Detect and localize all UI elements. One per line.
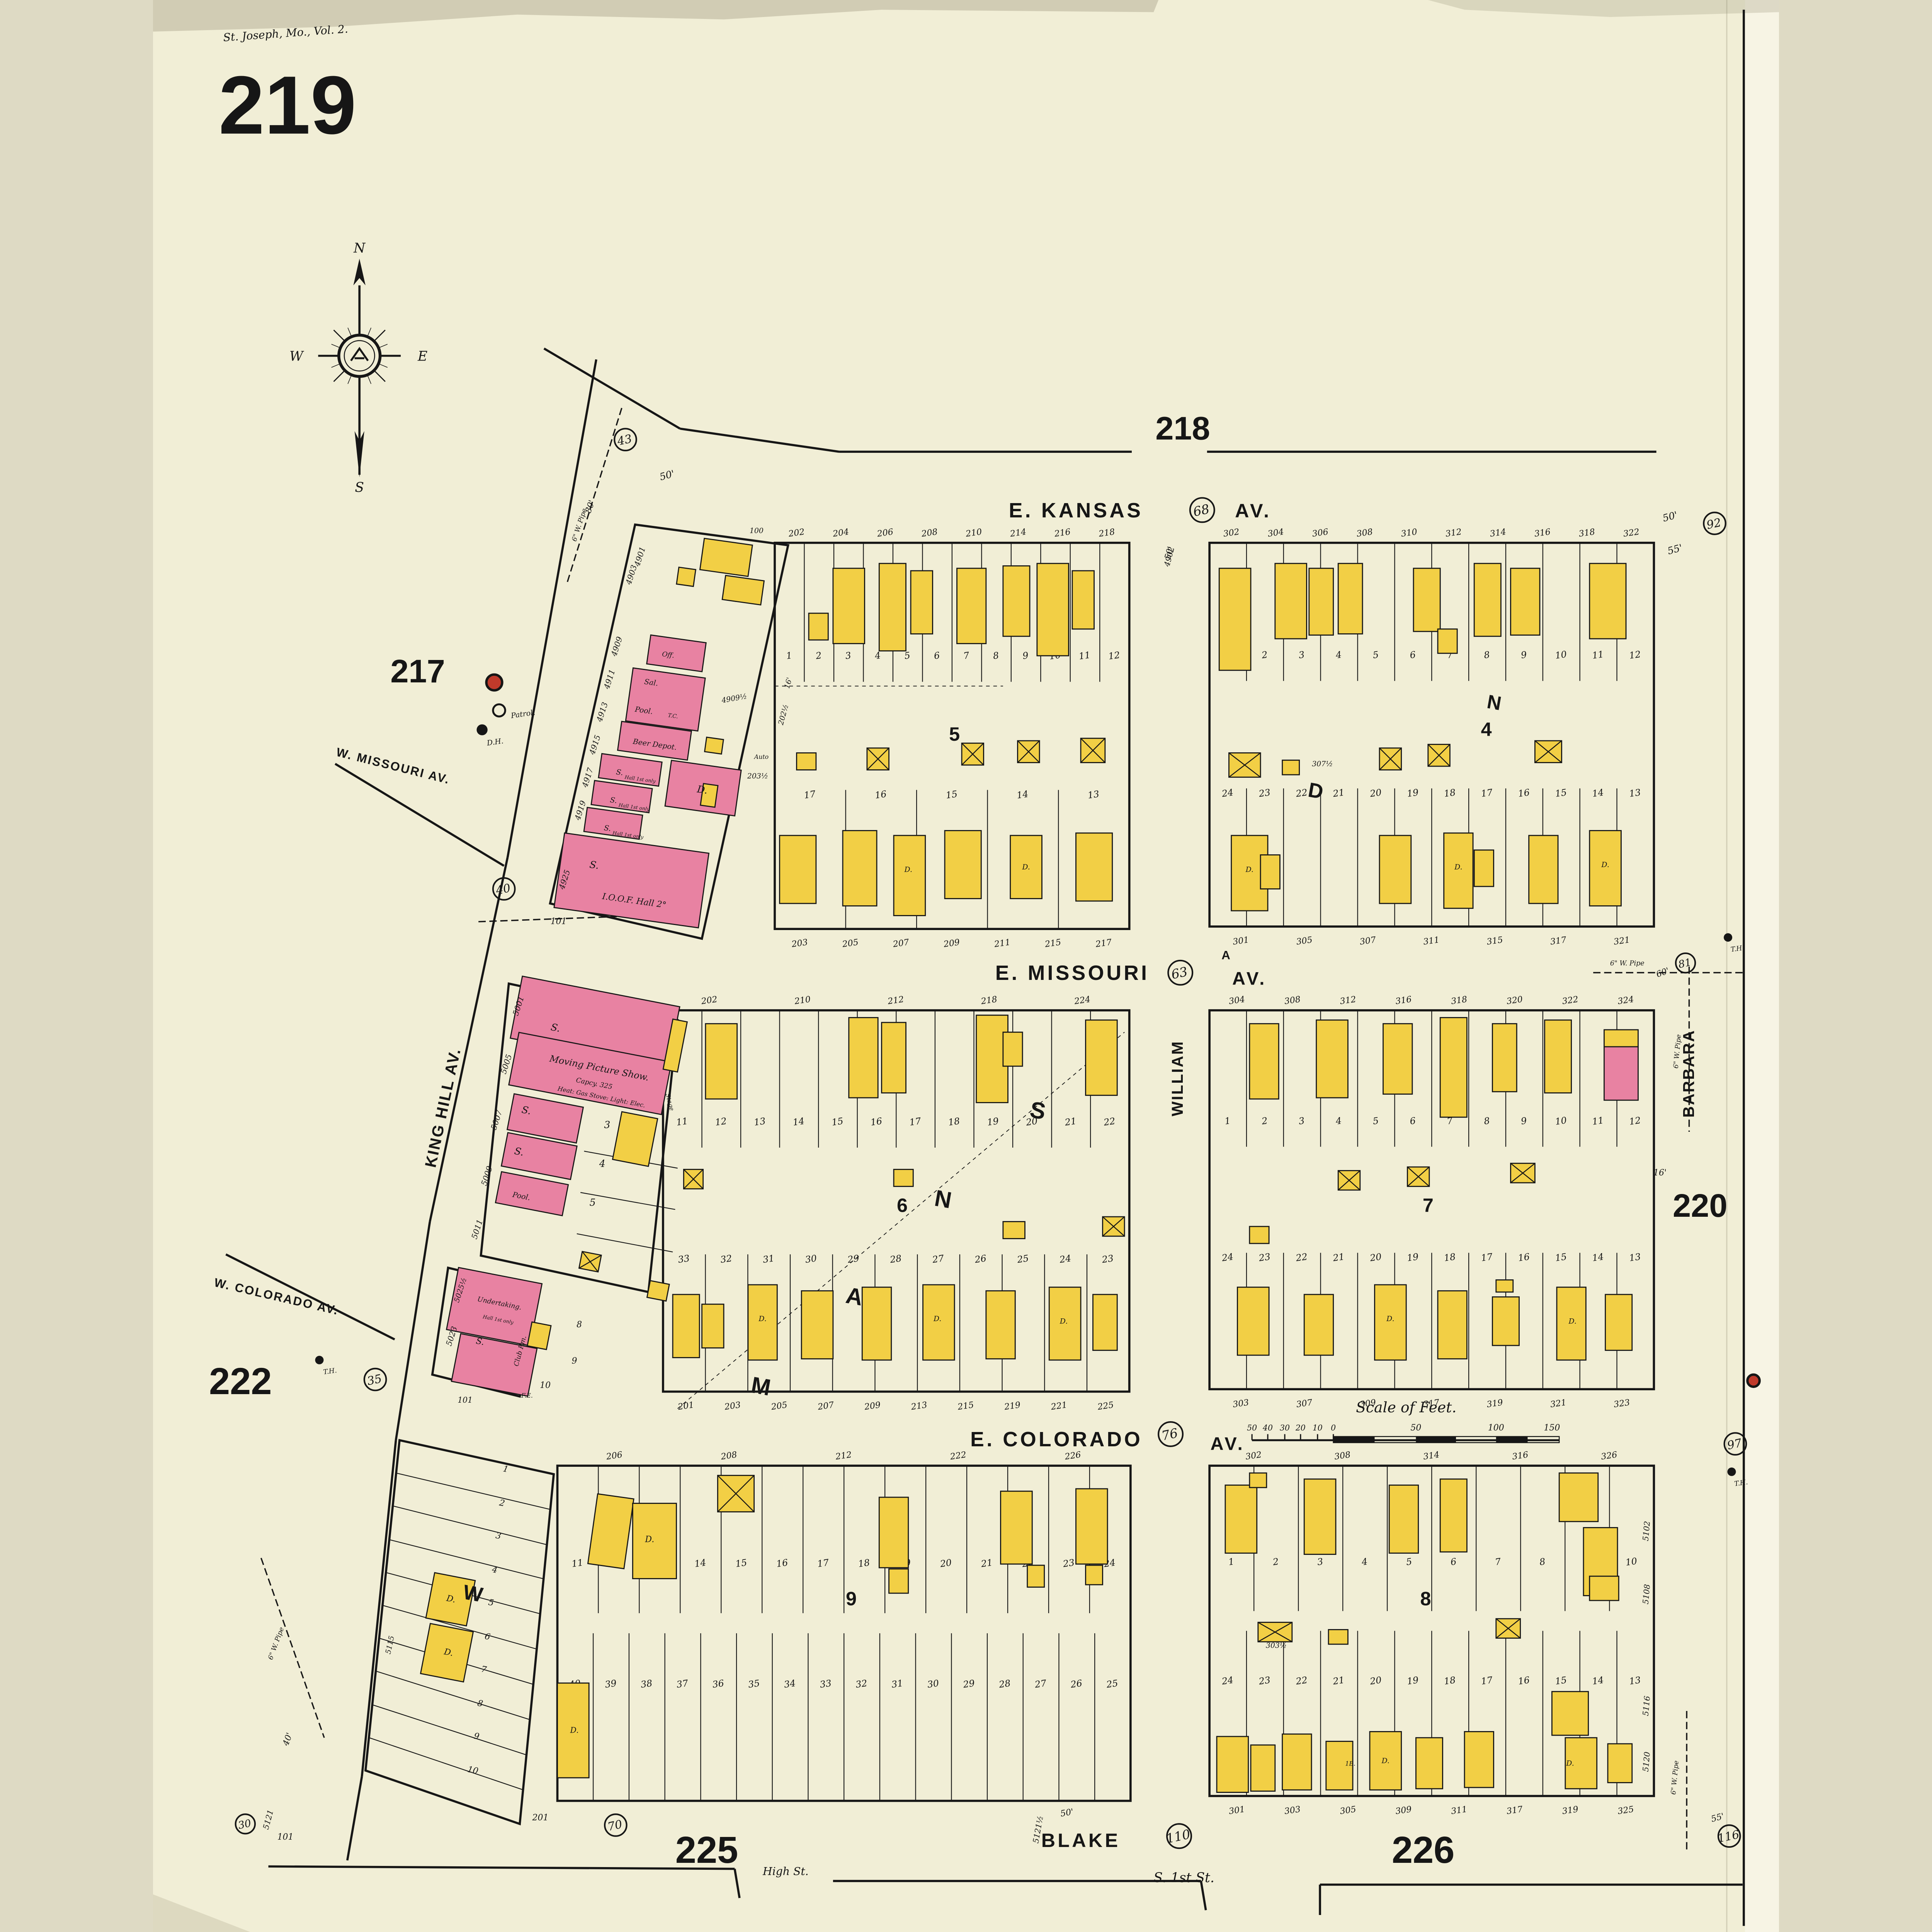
lot-number: 16: [874, 788, 887, 801]
building-footprint: [1304, 1479, 1336, 1554]
building-footprint: [797, 753, 816, 770]
building-footprint: [1544, 1020, 1571, 1093]
building-footprint: [1217, 1736, 1248, 1793]
building-frame: [1510, 568, 1539, 635]
map-label: 225: [675, 1829, 738, 1871]
building-frame: [843, 831, 877, 906]
building-footprint: [809, 613, 828, 640]
building-frame: [706, 1024, 737, 1099]
building-frame: [1389, 1485, 1418, 1553]
lot-number: 25: [1016, 1253, 1030, 1265]
map-stage: 6" W. Pipe.6" W. Pipe6" W. Pipe6" W. Pip…: [0, 0, 1932, 1932]
building-footprint: [1001, 1491, 1032, 1564]
lot-number: 23: [1101, 1253, 1114, 1265]
map-label: 222: [209, 1360, 272, 1402]
building-footprint: [879, 563, 906, 651]
scale-main-label: 150: [1544, 1423, 1560, 1433]
building-footprint: [843, 831, 877, 906]
building-outbuilding: [1535, 741, 1561, 763]
building-outbuilding: [1018, 741, 1040, 763]
map-label: S.: [604, 824, 612, 833]
building-footprint: [1608, 1744, 1632, 1783]
lot-number: 33: [819, 1678, 832, 1690]
compass-e: E: [417, 349, 427, 364]
lot-number: 22: [1295, 1251, 1308, 1264]
lot-number: 20: [1369, 1675, 1383, 1687]
building-footprint: [1559, 1473, 1598, 1522]
building-frame: [1608, 1744, 1632, 1783]
map-label: AV.: [1232, 968, 1267, 989]
building-footprint: [527, 1322, 551, 1349]
lot-number: 11: [1592, 1115, 1605, 1127]
lot-number: 16: [1517, 787, 1531, 799]
building-frame: [1316, 1020, 1348, 1098]
building-frame: [1304, 1479, 1336, 1554]
map-label: 219: [219, 60, 357, 151]
building-frame: [1474, 563, 1501, 636]
building-frame: [1383, 1024, 1412, 1094]
building-outbuilding: [1229, 753, 1260, 777]
building-footprint: [1282, 760, 1299, 775]
map-label: E. KANSAS: [1009, 499, 1143, 522]
building-footprint: [702, 1304, 724, 1348]
building-frame: [1590, 563, 1626, 639]
block-number: 9: [846, 1588, 857, 1610]
building-footprint: [1250, 1226, 1269, 1243]
building-outbuilding: [867, 748, 889, 770]
map-label: D.: [1022, 863, 1030, 871]
lot-number: 12: [714, 1116, 728, 1128]
building-footprint: [894, 835, 925, 915]
building-frame: [1282, 1734, 1311, 1790]
lot-number: 17: [816, 1557, 830, 1570]
map-label: E. MISSOURI: [995, 962, 1150, 985]
building-frame: [1251, 1745, 1275, 1791]
map-label: S.: [609, 796, 617, 805]
building-footprint: [633, 1503, 676, 1579]
lot-number: 14: [1016, 788, 1029, 801]
map-label: D.: [696, 783, 708, 796]
map-label: T.C.: [667, 713, 679, 720]
building-footprint: [722, 575, 764, 605]
building-footprint: [889, 1569, 908, 1593]
building-frame: [1440, 1018, 1467, 1117]
map-label: 3: [604, 1119, 610, 1131]
building-frame: [1496, 1280, 1513, 1292]
compass-ring: [339, 335, 380, 376]
lot-number: 23: [1258, 1675, 1271, 1687]
map-label: 307½: [1312, 760, 1333, 768]
lot-number: 13: [1628, 787, 1641, 799]
map-label: 9: [571, 1356, 577, 1366]
scale-tick-label: 0: [1331, 1423, 1336, 1432]
map-label: 5120: [1641, 1751, 1652, 1772]
lot-number: 30: [804, 1253, 818, 1265]
lot-number: 10: [1554, 649, 1568, 661]
map-label: 16': [1653, 1168, 1667, 1178]
building-outbuilding: [1407, 1167, 1429, 1186]
lot-number: 23: [1062, 1557, 1075, 1570]
building-footprint: [626, 668, 705, 731]
building-frame: [702, 1304, 724, 1348]
building-footprint: [1510, 568, 1539, 635]
lot-number: 27: [931, 1253, 945, 1265]
map-label: S. 1st St.: [1153, 1870, 1214, 1886]
building-frame: [1086, 1565, 1103, 1585]
building-frame: [801, 1291, 833, 1359]
map-label: S.: [616, 768, 624, 777]
map-label: D.: [1245, 866, 1253, 874]
building-footprint: [1438, 1291, 1467, 1359]
building-footprint: [1309, 568, 1333, 635]
map-label: 1B.: [1345, 1760, 1355, 1767]
scale-bar-title: Scale of Feet.: [1356, 1399, 1456, 1416]
building-frame: [527, 1322, 551, 1349]
building-footprint: [1605, 1294, 1632, 1350]
building-frame: [1076, 833, 1112, 901]
building-frame: [1416, 1738, 1442, 1789]
building-footprint: [1590, 1576, 1619, 1600]
fire-alarm-disc: [1747, 1375, 1759, 1387]
block-number: 5: [949, 723, 960, 745]
map-label: 203½: [747, 772, 768, 780]
building-frame: [633, 1503, 676, 1579]
building-frame: [1464, 1731, 1493, 1787]
building-outbuilding: [1258, 1622, 1292, 1642]
building-footprint: [1590, 563, 1626, 639]
map-label: 101: [277, 1832, 294, 1842]
lot-number: 39: [604, 1678, 617, 1690]
building-frame: [677, 567, 696, 587]
building-frame: [1492, 1297, 1519, 1345]
map-label: 101: [457, 1395, 473, 1405]
lot-number: 16: [776, 1557, 789, 1570]
building-frame: [986, 1291, 1015, 1359]
lot-number: 21: [980, 1557, 993, 1570]
lot-number: 11: [1592, 649, 1605, 661]
building-frame: [673, 1294, 699, 1357]
building-frame: [1003, 1222, 1025, 1239]
map-label: 218: [1155, 410, 1210, 447]
lot-number: 17: [1480, 787, 1493, 799]
building-frame: [1260, 855, 1280, 889]
building-outbuilding: [1428, 744, 1450, 766]
fire-alarm-icon: [486, 675, 502, 690]
lot-number: 24: [1221, 1675, 1234, 1687]
building-frame: [1037, 563, 1069, 656]
building-frame: [1379, 835, 1411, 903]
building-frame: [1492, 1024, 1517, 1092]
building-frame: [1250, 1024, 1279, 1099]
lot-number: 22: [1103, 1116, 1116, 1128]
lot-number: 28: [889, 1253, 902, 1265]
building-frame: [1304, 1294, 1333, 1355]
map-label: 5108: [1641, 1584, 1652, 1605]
map-label: D.: [933, 1315, 941, 1323]
compass-s: S: [355, 480, 364, 495]
building-brick: [626, 668, 705, 731]
building-footprint: [1093, 1294, 1117, 1350]
building-frame: [1438, 629, 1457, 653]
map-label: A: [1221, 949, 1231, 962]
building-footprint: [677, 567, 696, 587]
lot-number: 19: [1406, 1675, 1419, 1687]
building-footprint: [1383, 1024, 1412, 1094]
building-frame: [862, 1287, 891, 1360]
map-label: 217: [390, 653, 445, 689]
building-frame: [1275, 563, 1307, 639]
building-footprint: [1003, 566, 1030, 636]
building-footprint: [1328, 1629, 1348, 1644]
map-label: D.: [445, 1594, 456, 1605]
building-footprint: [1086, 1565, 1103, 1585]
building-frame: [704, 737, 723, 754]
lot-number: 18: [1443, 787, 1456, 799]
lot-number: 12: [1108, 650, 1121, 662]
building-footprint: [1237, 1287, 1269, 1355]
lot-number: 15: [735, 1557, 748, 1570]
map-label: Auto: [753, 753, 769, 760]
building-footprint: [1250, 1024, 1279, 1099]
building-outbuilding: [1081, 738, 1105, 763]
lot-number: 18: [1443, 1251, 1456, 1264]
building-frame: [1250, 1473, 1267, 1488]
building-frame: [1559, 1473, 1598, 1522]
building-frame: [1093, 1294, 1117, 1350]
map-label: S.: [589, 859, 600, 871]
building-frame: [1086, 1020, 1117, 1095]
map-label: F.E.: [521, 1392, 533, 1399]
compass-w: W: [289, 349, 304, 364]
triple-hydrant-icon: [315, 1356, 324, 1364]
lot-number: 16: [1517, 1675, 1531, 1687]
building-frame: [1552, 1692, 1588, 1735]
map-label: D.: [1386, 1315, 1394, 1323]
building-outbuilding: [1510, 1163, 1535, 1183]
building-frame: [797, 753, 816, 770]
building-footprint: [704, 737, 723, 754]
building-frame: [889, 1569, 908, 1593]
map-label: BLAKE: [1041, 1829, 1121, 1851]
building-footprint: [879, 1497, 908, 1568]
building-frame: [1309, 568, 1333, 635]
building-footprint: [1440, 1479, 1467, 1552]
scale-tick-label: 30: [1280, 1423, 1290, 1432]
map-label: D.: [904, 866, 912, 874]
lot-number: 25: [1105, 1678, 1119, 1690]
map-label: 10: [540, 1381, 551, 1390]
lot-number: 37: [676, 1678, 689, 1690]
building-footprint: [1416, 1738, 1442, 1789]
map-label: High St.: [762, 1865, 809, 1878]
map-label: 10: [467, 1765, 479, 1776]
building-frame: [1225, 1485, 1257, 1553]
map-label: E. COLORADO: [970, 1428, 1143, 1451]
lot-number: 11: [571, 1557, 584, 1570]
map-label: BARBARA: [1680, 1029, 1697, 1117]
map-label: 100: [750, 527, 764, 535]
lot-number: 14: [1592, 1251, 1605, 1264]
lot-number: 30: [927, 1678, 940, 1690]
map-label: 5116: [1641, 1696, 1652, 1716]
lot-number: 12: [1628, 649, 1641, 661]
building-frame: [882, 1022, 906, 1093]
lot-number: 15: [1554, 1675, 1568, 1687]
lot-number: 15: [831, 1116, 844, 1128]
building-outbuilding: [1496, 1619, 1520, 1638]
building-outbuilding: [962, 743, 984, 765]
building-frame: [1438, 1291, 1467, 1359]
map-label: WILLIAM: [1168, 1040, 1186, 1116]
building-frame: [879, 1497, 908, 1568]
lot-number: 14: [792, 1116, 805, 1128]
building-footprint: [1275, 563, 1307, 639]
map-label: D.: [645, 1535, 654, 1544]
lot-number: 13: [1628, 1251, 1641, 1264]
building-frame: [1338, 563, 1362, 634]
block-number: 8: [1420, 1588, 1431, 1610]
map-label: D.: [1060, 1318, 1068, 1326]
building-frame: [1001, 1491, 1032, 1564]
lot-number: 20: [1369, 787, 1383, 799]
building-frame: [1605, 1294, 1632, 1350]
lot-number: 17: [909, 1116, 922, 1128]
building-outbuilding: [1103, 1217, 1125, 1236]
lot-number: 27: [1034, 1678, 1047, 1690]
building-footprint: [945, 831, 981, 899]
lot-number: 14: [1592, 787, 1605, 799]
building-footprint: [1552, 1692, 1588, 1735]
map-label: 5102: [1641, 1520, 1652, 1541]
building-footprint: [1316, 1020, 1348, 1098]
paper-background: [153, 0, 1779, 1932]
building-footprint: [1003, 1032, 1022, 1066]
building-footprint: [986, 1291, 1015, 1359]
lot-number: 19: [1406, 1251, 1419, 1264]
building-frame: [1282, 760, 1299, 775]
building-footprint: [1529, 835, 1558, 903]
building-frame: [780, 835, 816, 903]
lot-number: 15: [945, 788, 958, 801]
building-footprint: [1037, 563, 1069, 656]
lot-number: 15: [1554, 1251, 1568, 1264]
building-frame: [1027, 1565, 1044, 1587]
building-footprint: [1389, 1485, 1418, 1553]
paper-margin-right: [1745, 0, 1779, 1932]
building-outbuilding: [579, 1252, 601, 1272]
building-footprint: [700, 538, 752, 576]
building-frame: [879, 563, 906, 651]
building-frame: [1590, 1576, 1619, 1600]
building-frame: [1474, 850, 1493, 886]
building-frame: [1003, 566, 1030, 636]
building-frame: [1072, 571, 1094, 629]
map-label: D.: [1568, 1318, 1577, 1326]
lot-number: 19: [1406, 787, 1419, 799]
lot-number: 14: [694, 1557, 707, 1570]
scale-tick-label: 10: [1313, 1423, 1323, 1432]
lot-number: 18: [857, 1557, 871, 1570]
fire-alarm-icon: [1747, 1375, 1759, 1387]
building-frame: [647, 1281, 669, 1301]
scale-tick-label: 50: [1247, 1423, 1257, 1432]
lot-number: 17: [803, 788, 816, 801]
map-label: 8: [577, 1320, 582, 1330]
lot-number: 29: [962, 1678, 976, 1690]
map-label: 5: [590, 1197, 596, 1208]
building-footprint: [706, 1024, 737, 1099]
lot-number: 22: [1295, 787, 1308, 799]
building-frame: [1529, 835, 1558, 903]
building-outbuilding: [1379, 748, 1401, 770]
map-label: D.: [1381, 1757, 1389, 1765]
building-footprint: [1282, 1734, 1311, 1790]
lot-number: 35: [747, 1678, 760, 1690]
lot-number: 19: [986, 1116, 1000, 1128]
lot-number: 14: [1592, 1675, 1605, 1687]
building-outbuilding: [1338, 1171, 1360, 1190]
map-label: 220: [1673, 1187, 1728, 1224]
lot-number: 16: [1517, 1251, 1531, 1264]
building-footprint: [1027, 1565, 1044, 1587]
map-label: Off.: [662, 650, 675, 660]
map-label: W: [461, 1581, 486, 1607]
building-footprint: [1086, 1020, 1117, 1095]
sanborn-map-sheet: 6" W. Pipe.6" W. Pipe6" W. Pipe6" W. Pip…: [153, 0, 1779, 1932]
building-footprint: [1379, 835, 1411, 903]
scale-tick-label: 40: [1262, 1423, 1273, 1432]
building-footprint: [1604, 1047, 1638, 1100]
triple-hydrant-icon: [1727, 1468, 1736, 1476]
map-label: D.: [758, 1315, 766, 1323]
building-footprint: [1413, 568, 1440, 631]
building-footprint: [1076, 833, 1112, 901]
map-label: D.: [1601, 861, 1609, 869]
map-label: 226: [1392, 1829, 1455, 1871]
lot-number: 17: [1480, 1251, 1493, 1264]
lot-number: 13: [1628, 1675, 1641, 1687]
lot-number: 15: [1554, 787, 1568, 799]
building-frame: [1440, 1479, 1467, 1552]
block-number: 6: [897, 1194, 908, 1216]
lot-number: 20: [1369, 1251, 1383, 1264]
building-footprint: [833, 568, 865, 644]
building-footprint: [1251, 1745, 1275, 1791]
map-label: AV.: [1235, 500, 1271, 522]
building-frame: [1328, 1629, 1348, 1644]
building-outbuilding: [684, 1169, 703, 1189]
building-footprint: [1338, 563, 1362, 634]
lot-number: 20: [939, 1557, 952, 1570]
building-frame: [911, 571, 933, 634]
building-frame: [849, 1018, 878, 1098]
building-footprint: [1003, 1222, 1025, 1239]
building-footprint: [1260, 855, 1280, 889]
lot-number: 24: [1221, 787, 1234, 799]
lot-number: 24: [1058, 1253, 1072, 1265]
building-outbuilding: [718, 1475, 754, 1512]
lot-number: 12: [1628, 1115, 1641, 1127]
building-footprint: [647, 1281, 669, 1301]
building-footprint: [801, 1291, 833, 1359]
building-footprint: [1604, 1030, 1638, 1047]
building-frame: [894, 1169, 913, 1186]
map-label: 4: [599, 1158, 605, 1169]
lot-number: 29: [847, 1253, 860, 1265]
building-frame: [1413, 568, 1440, 631]
building-frame: [809, 613, 828, 640]
building-frame: [1219, 568, 1251, 670]
